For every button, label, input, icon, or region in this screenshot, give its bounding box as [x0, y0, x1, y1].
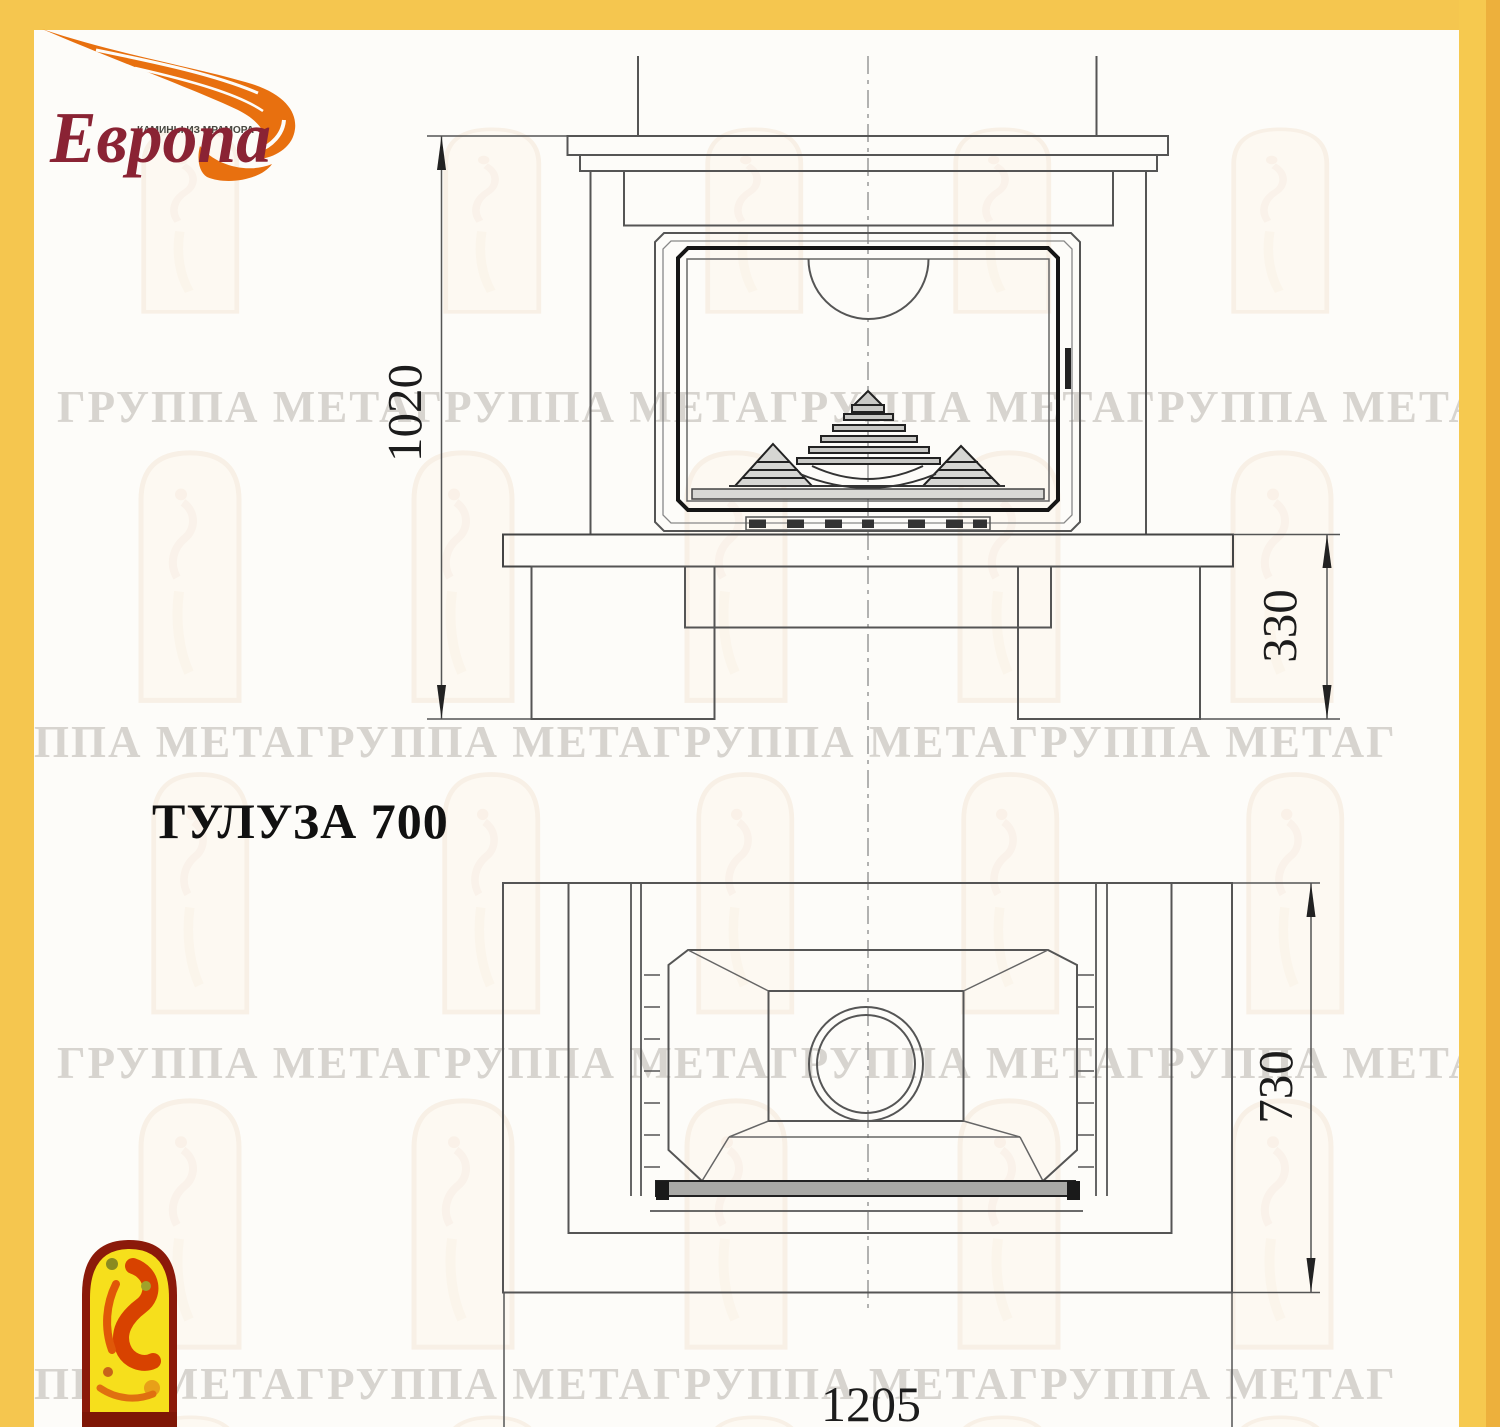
svg-text:730: 730 [1248, 1050, 1303, 1124]
svg-text:ТУЛУЗА 700: ТУЛУЗА 700 [152, 793, 449, 849]
svg-text:1020: 1020 [377, 364, 432, 462]
svg-text:330: 330 [1252, 589, 1307, 663]
svg-text:Европа: Европа [49, 97, 271, 178]
svg-text:1205: 1205 [821, 1376, 921, 1427]
svg-text:ГРУППА МЕТАГРУППА МЕТАГРУППА М: ГРУППА МЕТАГРУППА МЕТАГРУППА МЕТАГРУППА … [57, 382, 1483, 432]
svg-text:ГРУППА МЕТАГРУППА МЕТАГРУППА М: ГРУППА МЕТАГРУППА МЕТАГРУППА МЕТАГРУППА … [0, 717, 1397, 767]
svg-text:ГРУППА МЕТАГРУППА МЕТАГРУППА М: ГРУППА МЕТАГРУППА МЕТАГРУППА МЕТАГРУППА … [0, 1359, 1397, 1409]
